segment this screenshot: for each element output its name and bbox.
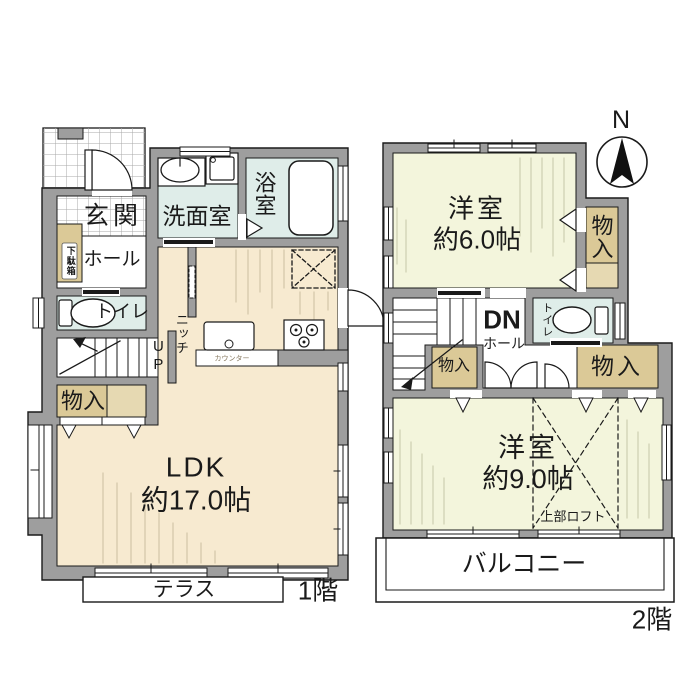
label-bedroom6-size: 約6.0帖 — [433, 226, 521, 253]
label-loft: 上部ロフト — [540, 510, 605, 524]
label-storage2-big: 物入 — [591, 354, 643, 378]
label-storage2-upper: 物入 — [589, 214, 612, 260]
label-niche: ニッチ — [174, 313, 188, 355]
label-toilet1: トイレ — [95, 303, 149, 322]
label-storage2-small: 物入 — [438, 359, 470, 376]
label-stairs-down: DN — [483, 306, 521, 333]
label-bathroom: 浴室 — [252, 171, 275, 217]
label-toilet2: トイレ — [540, 302, 552, 338]
label-stairs-up: UP — [150, 338, 166, 374]
bathtub-icon — [289, 161, 333, 235]
label-terrace: テラス — [153, 579, 216, 601]
label-bedroom9-size: 約9.0帖 — [482, 465, 574, 493]
label-bedroom9-name: 洋室 — [498, 434, 558, 462]
sink-icon — [158, 158, 205, 186]
back-door — [338, 288, 384, 328]
label-hall2: ホール — [483, 337, 525, 352]
compass-icon — [597, 137, 647, 187]
stove-icon — [284, 320, 324, 350]
label-washroom: 洗面室 — [163, 204, 232, 228]
label-floor1: 1階 — [298, 577, 338, 604]
label-hall1: ホール — [83, 250, 140, 270]
toilet2-icon — [553, 307, 608, 334]
floor1-plan — [28, 128, 384, 602]
label-ldk-name: LDK — [166, 452, 226, 481]
washing-machine-icon — [206, 153, 238, 184]
niche-recess — [189, 266, 195, 298]
washroom-opening — [163, 238, 215, 247]
label-kitchen-counter: カウンター — [215, 355, 250, 362]
label-balcony: バルコニー — [462, 551, 587, 577]
label-storage1: 物入 — [61, 389, 105, 412]
bedroom6-opening — [437, 288, 526, 298]
label-ldk-size: 約17.0帖 — [141, 485, 252, 514]
toilet2-opening — [550, 338, 602, 347]
label-shoe-cabinet: 下駄箱 — [65, 246, 74, 276]
hall-opening — [82, 288, 120, 296]
floorplan-drawing — [0, 0, 700, 700]
label-compass-north: N — [612, 107, 630, 133]
label-floor2: 2階 — [632, 606, 672, 633]
label-bedroom6-name: 洋室 — [448, 195, 506, 222]
floorplan-page: 玄関 下駄箱 ホール トイレ UP 物入 洗面室 浴室 ニッチ カウンター LD… — [0, 0, 700, 700]
label-entrance: 玄関 — [84, 203, 142, 229]
